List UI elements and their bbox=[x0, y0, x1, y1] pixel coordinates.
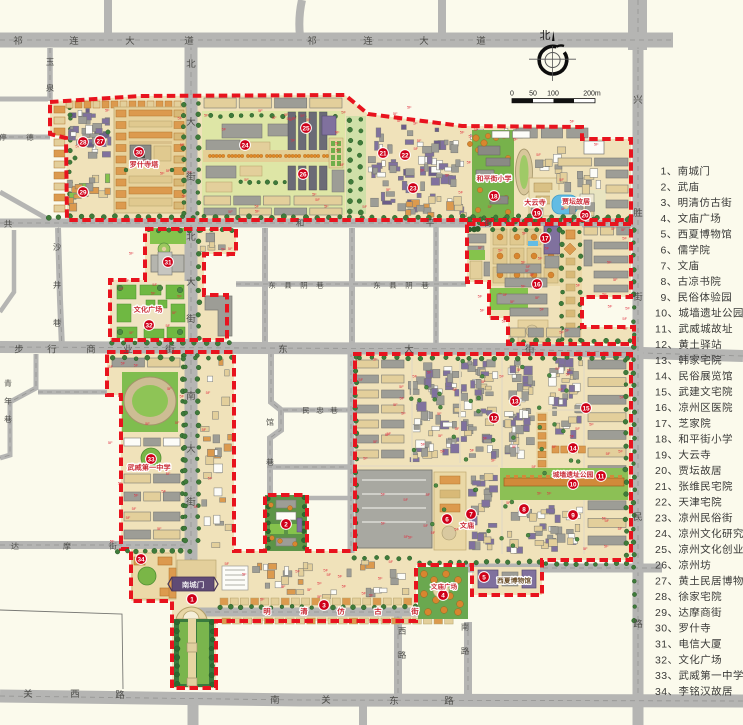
svg-text:5F: 5F bbox=[412, 373, 417, 378]
svg-text:4: 4 bbox=[441, 593, 445, 600]
svg-text:1: 1 bbox=[190, 597, 194, 604]
svg-text:5F: 5F bbox=[362, 204, 367, 209]
svg-text:3: 3 bbox=[661, 670, 667, 682]
svg-text:5F: 5F bbox=[498, 248, 503, 253]
svg-text:5F: 5F bbox=[224, 561, 229, 566]
svg-text:5F: 5F bbox=[618, 448, 623, 453]
svg-text:5F: 5F bbox=[358, 377, 363, 382]
svg-text:5F: 5F bbox=[575, 426, 580, 431]
svg-text:2: 2 bbox=[655, 512, 661, 524]
svg-text:8: 8 bbox=[661, 276, 667, 288]
svg-text:5F: 5F bbox=[399, 396, 404, 401]
svg-text:5F: 5F bbox=[132, 506, 137, 511]
svg-text:5F: 5F bbox=[458, 190, 463, 195]
svg-text:2: 2 bbox=[655, 544, 661, 556]
svg-text:1: 1 bbox=[655, 371, 661, 383]
svg-text:5F: 5F bbox=[121, 361, 126, 366]
svg-text:5F: 5F bbox=[604, 543, 609, 548]
svg-text:5F: 5F bbox=[408, 535, 413, 540]
svg-text:3: 3 bbox=[655, 686, 661, 698]
svg-text:5F: 5F bbox=[228, 209, 233, 214]
svg-text:15: 15 bbox=[582, 406, 590, 413]
svg-text:5F: 5F bbox=[324, 203, 329, 208]
svg-text:5F: 5F bbox=[172, 310, 177, 315]
svg-text:5F: 5F bbox=[538, 256, 543, 261]
svg-text:3: 3 bbox=[655, 670, 661, 682]
svg-text:5F: 5F bbox=[338, 574, 343, 579]
svg-text:2: 2 bbox=[655, 560, 661, 572]
svg-text:5F: 5F bbox=[417, 138, 422, 143]
svg-text:1: 1 bbox=[655, 386, 661, 398]
svg-text:5F: 5F bbox=[437, 411, 442, 416]
svg-text:5F: 5F bbox=[555, 366, 560, 371]
svg-text:5F: 5F bbox=[431, 530, 436, 535]
svg-text:10: 10 bbox=[569, 482, 577, 489]
svg-text:8: 8 bbox=[661, 591, 667, 603]
svg-text:23: 23 bbox=[409, 186, 417, 193]
svg-text:28: 28 bbox=[79, 140, 87, 147]
svg-text:5F: 5F bbox=[421, 441, 426, 446]
svg-text:1: 1 bbox=[655, 418, 661, 430]
svg-text:8: 8 bbox=[522, 507, 526, 514]
svg-text:5F: 5F bbox=[388, 559, 393, 564]
svg-text:9: 9 bbox=[571, 513, 575, 520]
svg-text:100: 100 bbox=[547, 91, 559, 98]
svg-text:5F: 5F bbox=[622, 235, 627, 240]
svg-text:3: 3 bbox=[661, 355, 667, 367]
svg-text:32: 32 bbox=[145, 323, 153, 330]
svg-text:5F: 5F bbox=[559, 177, 564, 182]
svg-text:7: 7 bbox=[469, 512, 473, 519]
svg-text:5F: 5F bbox=[295, 569, 300, 574]
svg-text:5F: 5F bbox=[445, 172, 450, 177]
svg-text:1: 1 bbox=[655, 449, 661, 461]
svg-text:5F: 5F bbox=[552, 444, 557, 449]
svg-text:5F: 5F bbox=[289, 117, 294, 122]
svg-text:5F: 5F bbox=[300, 113, 305, 118]
svg-text:2: 2 bbox=[661, 497, 667, 509]
svg-text:5F: 5F bbox=[272, 115, 277, 120]
svg-text:2: 2 bbox=[655, 528, 661, 540]
svg-text:5F: 5F bbox=[478, 245, 483, 250]
svg-text:0: 0 bbox=[661, 465, 667, 477]
svg-text:5F: 5F bbox=[167, 386, 172, 391]
svg-text:1: 1 bbox=[661, 481, 667, 493]
svg-text:5F: 5F bbox=[565, 328, 570, 333]
svg-text:5F: 5F bbox=[619, 394, 624, 399]
svg-text:2: 2 bbox=[655, 576, 661, 588]
svg-text:5F: 5F bbox=[119, 286, 124, 291]
svg-text:31: 31 bbox=[164, 260, 172, 267]
svg-text:5F: 5F bbox=[386, 187, 391, 192]
svg-text:5F: 5F bbox=[161, 488, 166, 493]
svg-text:5F: 5F bbox=[399, 384, 404, 389]
svg-text:5F: 5F bbox=[536, 152, 541, 157]
svg-text:1: 1 bbox=[661, 323, 667, 335]
svg-text:5F: 5F bbox=[378, 576, 383, 581]
svg-text:5F: 5F bbox=[134, 363, 139, 368]
svg-text:5F: 5F bbox=[342, 583, 347, 588]
svg-text:5F: 5F bbox=[291, 137, 296, 142]
svg-text:27: 27 bbox=[96, 139, 104, 146]
svg-text:5F: 5F bbox=[512, 444, 517, 449]
svg-text:5F: 5F bbox=[440, 449, 445, 454]
svg-text:21: 21 bbox=[379, 151, 387, 158]
svg-text:5F: 5F bbox=[535, 295, 540, 300]
svg-text:5F: 5F bbox=[307, 587, 312, 592]
svg-text:12: 12 bbox=[490, 416, 498, 423]
svg-text:5F: 5F bbox=[611, 226, 616, 231]
svg-text:6: 6 bbox=[445, 517, 449, 524]
svg-text:11: 11 bbox=[598, 474, 605, 481]
svg-text:5F: 5F bbox=[126, 515, 131, 520]
svg-text:50: 50 bbox=[529, 91, 537, 98]
svg-text:5F: 5F bbox=[559, 330, 564, 335]
svg-text:7: 7 bbox=[661, 418, 667, 430]
svg-text:16: 16 bbox=[533, 282, 541, 289]
svg-text:5F: 5F bbox=[260, 597, 265, 602]
svg-text:5F: 5F bbox=[258, 108, 263, 113]
svg-text:5F: 5F bbox=[404, 534, 409, 539]
svg-text:5F: 5F bbox=[604, 518, 609, 523]
svg-text:5F: 5F bbox=[386, 431, 391, 436]
svg-text:2: 2 bbox=[655, 591, 661, 603]
svg-text:1: 1 bbox=[655, 339, 661, 351]
svg-text:5F: 5F bbox=[361, 590, 366, 595]
svg-text:3: 3 bbox=[661, 197, 667, 209]
svg-text:5F: 5F bbox=[607, 259, 612, 264]
svg-text:5F: 5F bbox=[129, 330, 134, 335]
svg-text:5F: 5F bbox=[427, 369, 432, 374]
svg-text:1: 1 bbox=[655, 355, 661, 367]
svg-text:4: 4 bbox=[661, 371, 667, 383]
svg-text:5F: 5F bbox=[373, 439, 378, 444]
svg-text:5F: 5F bbox=[151, 291, 156, 296]
svg-text:5F: 5F bbox=[618, 526, 623, 531]
svg-text:5F: 5F bbox=[438, 433, 443, 438]
svg-text:5F: 5F bbox=[108, 364, 113, 369]
svg-text:5F: 5F bbox=[481, 379, 486, 384]
svg-text:26: 26 bbox=[299, 172, 307, 179]
svg-text:5F: 5F bbox=[608, 304, 613, 309]
svg-text:1: 1 bbox=[655, 323, 661, 335]
svg-text:5F: 5F bbox=[202, 427, 207, 432]
svg-text:5F: 5F bbox=[506, 500, 511, 505]
svg-text:5F: 5F bbox=[221, 246, 226, 251]
svg-text:5F: 5F bbox=[166, 168, 171, 173]
svg-text:5F: 5F bbox=[335, 129, 340, 134]
svg-text:200m: 200m bbox=[583, 91, 601, 98]
svg-text:17: 17 bbox=[541, 236, 549, 243]
svg-text:33: 33 bbox=[147, 457, 155, 464]
svg-text:8: 8 bbox=[661, 434, 667, 446]
svg-text:5F: 5F bbox=[483, 435, 488, 440]
svg-text:5F: 5F bbox=[530, 272, 535, 277]
svg-text:5F: 5F bbox=[326, 572, 331, 577]
svg-text:5F: 5F bbox=[625, 306, 630, 311]
svg-text:5F: 5F bbox=[503, 292, 508, 297]
svg-text:5F: 5F bbox=[589, 421, 594, 426]
svg-text:6: 6 bbox=[661, 402, 667, 414]
svg-text:25: 25 bbox=[302, 126, 310, 133]
svg-text:5F: 5F bbox=[468, 134, 473, 139]
svg-text:5F: 5F bbox=[393, 111, 398, 116]
svg-text:5F: 5F bbox=[513, 136, 518, 141]
svg-text:5F: 5F bbox=[478, 294, 483, 299]
svg-text:5F: 5F bbox=[423, 523, 428, 528]
svg-text:5F: 5F bbox=[622, 316, 627, 321]
svg-text:5F: 5F bbox=[255, 209, 260, 214]
svg-text:2: 2 bbox=[661, 339, 667, 351]
svg-text:5: 5 bbox=[661, 229, 667, 241]
svg-text:3: 3 bbox=[655, 639, 661, 651]
svg-text:5F: 5F bbox=[204, 113, 209, 118]
svg-text:5F: 5F bbox=[306, 117, 311, 122]
svg-text:20: 20 bbox=[581, 213, 589, 220]
svg-text:5F: 5F bbox=[583, 546, 588, 551]
svg-text:19: 19 bbox=[533, 211, 541, 218]
svg-text:5F: 5F bbox=[157, 526, 162, 531]
svg-text:5F: 5F bbox=[517, 367, 522, 372]
svg-text:1: 1 bbox=[661, 166, 667, 178]
svg-text:5F: 5F bbox=[570, 118, 575, 123]
svg-text:3: 3 bbox=[322, 603, 326, 610]
svg-text:9: 9 bbox=[661, 449, 667, 461]
svg-text:4: 4 bbox=[661, 213, 667, 225]
svg-text:5F: 5F bbox=[570, 434, 575, 439]
svg-text:5F: 5F bbox=[160, 171, 165, 176]
svg-text:5F: 5F bbox=[522, 231, 527, 236]
svg-text:5F: 5F bbox=[606, 451, 611, 456]
svg-text:1: 1 bbox=[661, 639, 667, 651]
svg-text:5F: 5F bbox=[175, 420, 180, 425]
svg-text:5F: 5F bbox=[576, 283, 581, 288]
svg-text:6: 6 bbox=[661, 560, 667, 572]
svg-text:5F: 5F bbox=[407, 105, 412, 110]
svg-text:5F: 5F bbox=[488, 204, 493, 209]
svg-text:2: 2 bbox=[284, 522, 288, 529]
svg-text:5F: 5F bbox=[521, 284, 526, 289]
svg-text:5F: 5F bbox=[312, 192, 317, 197]
svg-text:2: 2 bbox=[655, 481, 661, 493]
svg-text:5F: 5F bbox=[315, 197, 320, 202]
svg-text:13: 13 bbox=[511, 399, 519, 406]
svg-text:5F: 5F bbox=[413, 146, 418, 151]
svg-text:5F: 5F bbox=[561, 206, 566, 211]
svg-text:5F: 5F bbox=[420, 168, 425, 173]
svg-text:4: 4 bbox=[661, 686, 667, 698]
svg-text:5F: 5F bbox=[317, 580, 322, 585]
svg-text:5F: 5F bbox=[460, 130, 465, 135]
svg-text:5F: 5F bbox=[208, 475, 213, 480]
svg-text:6: 6 bbox=[661, 245, 667, 257]
svg-text:5F: 5F bbox=[510, 299, 515, 304]
svg-text:5F: 5F bbox=[281, 584, 286, 589]
svg-text:3: 3 bbox=[655, 623, 661, 635]
svg-text:5F: 5F bbox=[613, 277, 618, 282]
svg-text:5F: 5F bbox=[206, 390, 211, 395]
svg-text:5F: 5F bbox=[228, 246, 233, 251]
svg-text:22: 22 bbox=[401, 153, 409, 160]
svg-text:5F: 5F bbox=[373, 357, 378, 362]
svg-text:3: 3 bbox=[661, 512, 667, 524]
svg-text:2: 2 bbox=[655, 465, 661, 477]
svg-text:30: 30 bbox=[135, 150, 143, 157]
svg-text:5F: 5F bbox=[566, 371, 571, 376]
svg-text:5F: 5F bbox=[129, 251, 134, 256]
svg-text:5F: 5F bbox=[425, 492, 430, 497]
svg-text:5F: 5F bbox=[480, 308, 485, 313]
svg-text:5F: 5F bbox=[182, 194, 187, 199]
svg-text:5F: 5F bbox=[531, 464, 536, 469]
svg-text:5F: 5F bbox=[340, 162, 345, 167]
svg-text:5: 5 bbox=[661, 544, 667, 556]
svg-text:5F: 5F bbox=[401, 411, 406, 416]
svg-text:5F: 5F bbox=[525, 268, 530, 273]
svg-text:5F: 5F bbox=[537, 491, 542, 496]
svg-text:5F: 5F bbox=[177, 116, 182, 121]
svg-text:5F: 5F bbox=[180, 142, 185, 147]
svg-text:5F: 5F bbox=[335, 141, 340, 146]
svg-text:5F: 5F bbox=[336, 148, 341, 153]
svg-text:5F: 5F bbox=[105, 107, 110, 112]
svg-text:5F: 5F bbox=[179, 393, 184, 398]
svg-text:5F: 5F bbox=[558, 387, 563, 392]
svg-text:9: 9 bbox=[661, 292, 667, 304]
svg-text:5F: 5F bbox=[470, 448, 475, 453]
svg-text:5F: 5F bbox=[165, 323, 170, 328]
svg-text:5F: 5F bbox=[177, 293, 182, 298]
svg-text:5F: 5F bbox=[317, 594, 322, 599]
svg-text:5F: 5F bbox=[152, 282, 157, 287]
svg-text:5F: 5F bbox=[381, 520, 386, 525]
svg-text:0: 0 bbox=[661, 623, 667, 635]
svg-text:24: 24 bbox=[241, 143, 249, 150]
svg-text:2: 2 bbox=[655, 497, 661, 509]
svg-text:5F: 5F bbox=[381, 492, 386, 497]
svg-text:29: 29 bbox=[79, 190, 87, 197]
svg-text:5F: 5F bbox=[369, 592, 374, 597]
svg-text:5F: 5F bbox=[242, 571, 247, 576]
svg-text:5F: 5F bbox=[108, 440, 113, 445]
svg-text:1: 1 bbox=[655, 434, 661, 446]
svg-text:5F: 5F bbox=[621, 227, 626, 232]
svg-text:5F: 5F bbox=[341, 109, 346, 114]
svg-text:5F: 5F bbox=[467, 159, 472, 164]
svg-text:4: 4 bbox=[661, 528, 667, 540]
svg-text:0: 0 bbox=[661, 308, 667, 320]
svg-text:5F: 5F bbox=[455, 426, 460, 431]
svg-text:5F: 5F bbox=[545, 246, 550, 251]
svg-text:34: 34 bbox=[137, 557, 145, 564]
svg-text:5F: 5F bbox=[363, 455, 368, 460]
svg-text:0: 0 bbox=[510, 91, 514, 98]
svg-text:5: 5 bbox=[482, 575, 486, 582]
svg-text:5F: 5F bbox=[452, 387, 457, 392]
svg-text:7: 7 bbox=[661, 576, 667, 588]
svg-text:18: 18 bbox=[490, 194, 498, 201]
svg-text:5F: 5F bbox=[145, 421, 150, 426]
svg-text:5F: 5F bbox=[134, 492, 139, 497]
svg-text:1: 1 bbox=[655, 308, 661, 320]
svg-text:2: 2 bbox=[655, 607, 661, 619]
svg-text:14: 14 bbox=[569, 446, 577, 453]
svg-text:5F: 5F bbox=[403, 497, 408, 502]
svg-text:2: 2 bbox=[661, 182, 667, 194]
svg-text:5F: 5F bbox=[244, 177, 249, 182]
svg-text:7: 7 bbox=[661, 260, 667, 272]
svg-text:5F: 5F bbox=[539, 307, 544, 312]
svg-text:5F: 5F bbox=[393, 402, 398, 407]
svg-text:5F: 5F bbox=[222, 127, 227, 132]
svg-text:5F: 5F bbox=[547, 491, 552, 496]
svg-text:5F: 5F bbox=[491, 458, 496, 463]
svg-text:5: 5 bbox=[661, 386, 667, 398]
svg-text:9: 9 bbox=[661, 607, 667, 619]
svg-text:3: 3 bbox=[655, 654, 661, 666]
svg-text:5F: 5F bbox=[254, 203, 259, 208]
svg-text:5F: 5F bbox=[594, 142, 599, 147]
svg-text:1: 1 bbox=[655, 402, 661, 414]
svg-text:5F: 5F bbox=[499, 374, 504, 379]
svg-text:2: 2 bbox=[661, 654, 667, 666]
